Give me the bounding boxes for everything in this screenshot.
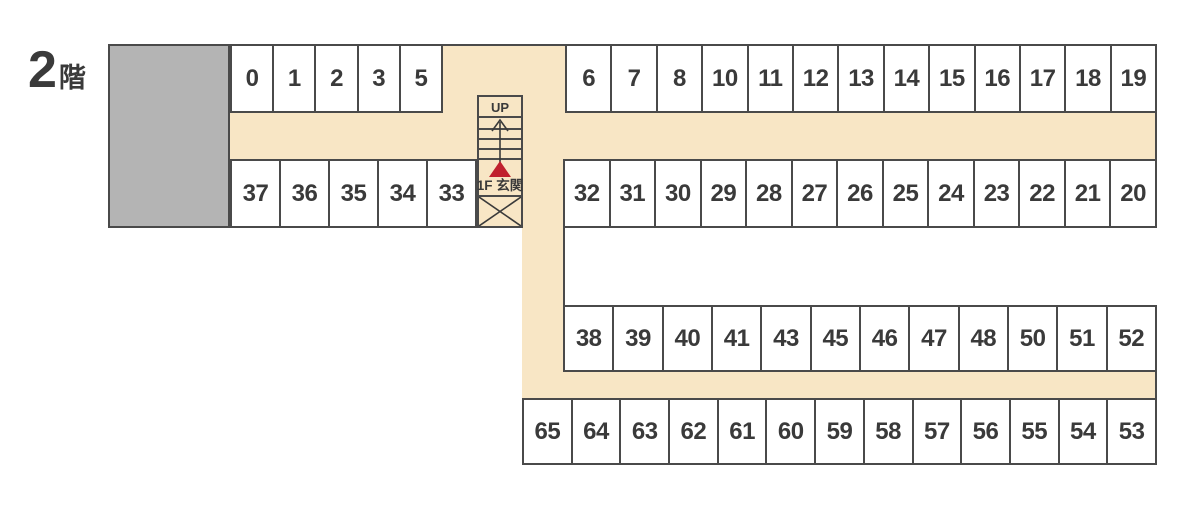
space-row-upper-left: 01235 (230, 44, 443, 113)
floor-suffix: 階 (59, 63, 86, 93)
outline-corridor-lower-right (1155, 372, 1157, 398)
floor-number: 2 (28, 41, 56, 99)
space-cell-22: 22 (1020, 159, 1066, 228)
space-cell-57: 57 (914, 398, 963, 465)
space-cell-61: 61 (719, 398, 768, 465)
up-arrow-icon (479, 118, 521, 166)
space-cell-37: 37 (230, 159, 281, 228)
space-cell-27: 27 (793, 159, 839, 228)
space-cell-26: 26 (838, 159, 884, 228)
corridor-vertical (522, 158, 563, 398)
space-cell-8: 8 (658, 44, 703, 113)
space-cell-56: 56 (962, 398, 1011, 465)
space-cell-31: 31 (611, 159, 657, 228)
space-cell-55: 55 (1011, 398, 1060, 465)
space-cell-41: 41 (713, 305, 762, 372)
floor-map: 2階 0123567810111213141516171819373635343… (0, 0, 1188, 506)
space-cell-34: 34 (379, 159, 428, 228)
space-cell-15: 15 (930, 44, 975, 113)
entrance-marker-icon (489, 161, 511, 177)
space-cell-5: 5 (401, 44, 443, 113)
space-cell-20: 20 (1111, 159, 1157, 228)
space-cell-7: 7 (612, 44, 657, 113)
space-cell-43: 43 (762, 305, 811, 372)
space-cell-48: 48 (960, 305, 1009, 372)
space-cell-19: 19 (1112, 44, 1157, 113)
space-cell-46: 46 (861, 305, 910, 372)
space-cell-24: 24 (929, 159, 975, 228)
space-cell-13: 13 (839, 44, 884, 113)
space-cell-11: 11 (749, 44, 794, 113)
space-cell-62: 62 (670, 398, 719, 465)
space-row-bottom: 65646362616059585756555453 (522, 398, 1157, 465)
space-cell-63: 63 (621, 398, 670, 465)
space-cell-58: 58 (865, 398, 914, 465)
outline-corridor-top-right (1155, 113, 1157, 159)
space-cell-35: 35 (330, 159, 379, 228)
space-cell-16: 16 (976, 44, 1021, 113)
building-block (108, 44, 230, 228)
space-cell-64: 64 (573, 398, 622, 465)
space-row-second-left: 3736353433 (230, 159, 477, 228)
space-row-second-right: 32313029282726252423222120 (563, 159, 1157, 228)
space-cell-2: 2 (316, 44, 358, 113)
space-row-third: 383940414345464748505152 (563, 305, 1157, 372)
space-cell-59: 59 (816, 398, 865, 465)
corridor-top (230, 113, 1157, 159)
space-cell-14: 14 (885, 44, 930, 113)
space-cell-0: 0 (230, 44, 274, 113)
space-cell-1: 1 (274, 44, 316, 113)
space-cell-50: 50 (1009, 305, 1058, 372)
stairwell: UP 1F 玄関 (477, 95, 523, 228)
space-cell-39: 39 (614, 305, 663, 372)
space-cell-17: 17 (1021, 44, 1066, 113)
space-cell-52: 52 (1108, 305, 1157, 372)
space-row-upper-right: 67810111213141516171819 (565, 44, 1157, 113)
space-cell-36: 36 (281, 159, 330, 228)
space-cell-18: 18 (1066, 44, 1111, 113)
space-cell-10: 10 (703, 44, 748, 113)
corridor-lower (522, 372, 1157, 398)
space-cell-32: 32 (563, 159, 611, 228)
space-cell-54: 54 (1060, 398, 1109, 465)
x-cross-icon (479, 197, 521, 226)
space-cell-30: 30 (656, 159, 702, 228)
outline-top-segment (443, 44, 565, 46)
space-cell-28: 28 (747, 159, 793, 228)
space-cell-3: 3 (359, 44, 401, 113)
space-cell-47: 47 (910, 305, 959, 372)
entrance-label: 1F 玄関 (477, 178, 524, 194)
space-cell-53: 53 (1108, 398, 1157, 465)
space-cell-38: 38 (563, 305, 614, 372)
space-cell-45: 45 (812, 305, 861, 372)
space-cell-25: 25 (884, 159, 930, 228)
space-cell-23: 23 (975, 159, 1021, 228)
space-cell-51: 51 (1058, 305, 1107, 372)
space-cell-21: 21 (1066, 159, 1112, 228)
space-cell-12: 12 (794, 44, 839, 113)
stairs-void-box (479, 195, 521, 226)
floor-label: 2階 (28, 44, 86, 96)
space-cell-60: 60 (767, 398, 816, 465)
space-cell-65: 65 (522, 398, 573, 465)
space-cell-6: 6 (565, 44, 612, 113)
space-cell-33: 33 (428, 159, 477, 228)
space-cell-40: 40 (664, 305, 713, 372)
stairs-up-label: UP (479, 97, 521, 118)
outline-gap-left (563, 228, 565, 305)
space-cell-29: 29 (702, 159, 748, 228)
